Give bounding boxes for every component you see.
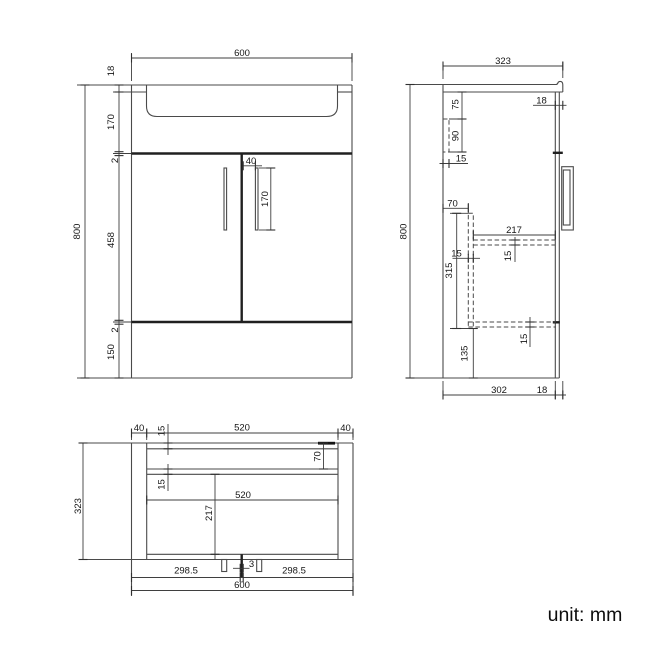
pv-dim-inner-width: 520 — [147, 490, 338, 505]
sv-rail-thickness-label: 15 — [456, 154, 467, 165]
pv-dim-depth: 323 — [73, 443, 88, 560]
fv-dim-chain: 18 170 2 458 2 150 — [106, 66, 124, 378]
pv-door-left-label: 298.5 — [174, 566, 198, 577]
fv-dim-width: 600 — [132, 48, 353, 81]
pv-dim-door-gap: 3 — [233, 559, 254, 573]
drawing-canvas: 600 800 18 170 2 458 2 150 40 — [0, 0, 650, 650]
pv-opening-width-label: 520 — [234, 423, 250, 434]
sv-counter-front-gap-label: 18 — [536, 95, 547, 106]
sv-back-rail-hidden — [443, 119, 449, 152]
pv-hinge-tab-right — [257, 560, 262, 572]
fv-height-label: 800 — [72, 224, 83, 240]
fv-plinth-height-label: 150 — [106, 344, 117, 360]
sv-dim-bottom-depth: 302 18 — [443, 381, 566, 400]
sv-bottom-clearance-label: 135 — [460, 346, 471, 362]
sv-dim-rail: 75 90 15 — [440, 92, 469, 168]
pv-dim-width: 600 — [132, 580, 354, 595]
fv-basin-depth-label: 170 — [106, 114, 117, 130]
plan-view: 40 520 40 15 70 15 520 217 — [73, 423, 353, 597]
sv-shelf-depth-label: 217 — [506, 225, 522, 236]
pv-inner-width-label: 520 — [235, 490, 251, 501]
sv-rail-height-label: 90 — [451, 131, 462, 142]
pv-dim-shelf-depth: 217 — [204, 474, 220, 559]
side-view: 323 800 18 75 90 15 70 — [399, 56, 574, 400]
pv-dim-mid-rail: 15 — [157, 464, 173, 491]
pv-depth-label: 323 — [73, 498, 84, 514]
fv-width-label: 600 — [234, 48, 250, 59]
fv-dim-handle-height: 170 — [259, 168, 275, 230]
sv-body-depth-label: 302 — [491, 385, 507, 396]
fv-handle-height-label: 170 — [260, 191, 271, 207]
fv-cabinet-outline — [77, 85, 352, 378]
pv-hinge-tab-left — [222, 560, 227, 572]
sv-handle-profile-inner — [563, 170, 570, 225]
sv-dim-depth: 323 — [443, 56, 563, 79]
pv-width-label: 600 — [234, 580, 250, 591]
sv-bottom-panel-thickness-label: 15 — [519, 334, 530, 345]
fv-handle-left — [224, 168, 227, 230]
sv-dim-height: 800 — [399, 85, 415, 379]
fv-basin-bowl — [147, 85, 338, 117]
pv-door-right-label: 298.5 — [282, 566, 306, 577]
pv-back-rail-thickness-label: 15 — [157, 426, 168, 437]
sv-height-label: 800 — [399, 224, 410, 240]
pv-door-gap-label: 3 — [249, 559, 254, 570]
fv-door-gaps — [113, 154, 352, 323]
fv-handle-offset-label: 40 — [246, 156, 257, 167]
sv-shelf-thickness-label: 15 — [503, 251, 514, 262]
sv-depth-label: 323 — [495, 56, 511, 67]
sv-dim-shelf: 217 15 — [473, 225, 555, 262]
pv-carcass-outline — [79, 443, 353, 596]
pv-left-panel-label: 40 — [134, 423, 145, 434]
sv-dim-divider: 70 315 15 — [443, 199, 480, 329]
sv-rail-top-offset-label: 75 — [451, 99, 462, 110]
pv-back-rail-offset-label: 70 — [313, 451, 324, 462]
sv-divider-height-label: 315 — [444, 263, 455, 279]
sv-divider-thickness-label: 15 — [451, 248, 462, 259]
fv-top-gap-label: 2 — [110, 158, 121, 163]
sv-dim-counter-front-gap: 18 — [533, 95, 567, 110]
fv-bottom-gap-label: 2 — [110, 327, 121, 332]
sv-shelf-hidden — [473, 240, 555, 245]
sv-dim-bottom-panel: 15 135 — [460, 317, 535, 378]
front-view: 600 800 18 170 2 458 2 150 40 — [72, 48, 352, 378]
sv-cabinet-outline — [406, 81, 563, 378]
fv-dim-height: 800 — [72, 85, 90, 378]
pv-mid-rail-thickness-label: 15 — [157, 479, 168, 490]
unit-note: unit: mm — [548, 604, 623, 626]
fv-door-height-label: 458 — [106, 232, 117, 248]
sv-divider-hidden — [468, 213, 473, 328]
technical-drawing-page: 600 800 18 170 2 458 2 150 40 — [0, 0, 650, 650]
sv-bottom-panel-hidden — [468, 322, 556, 327]
sv-front-gap-label: 18 — [537, 385, 548, 396]
fv-handle-right — [255, 168, 258, 230]
fv-counter-thickness-label: 18 — [106, 66, 117, 77]
pv-shelf-depth-label: 217 — [204, 505, 215, 521]
sv-divider-offset-label: 70 — [447, 199, 458, 210]
pv-right-panel-label: 40 — [340, 423, 351, 434]
